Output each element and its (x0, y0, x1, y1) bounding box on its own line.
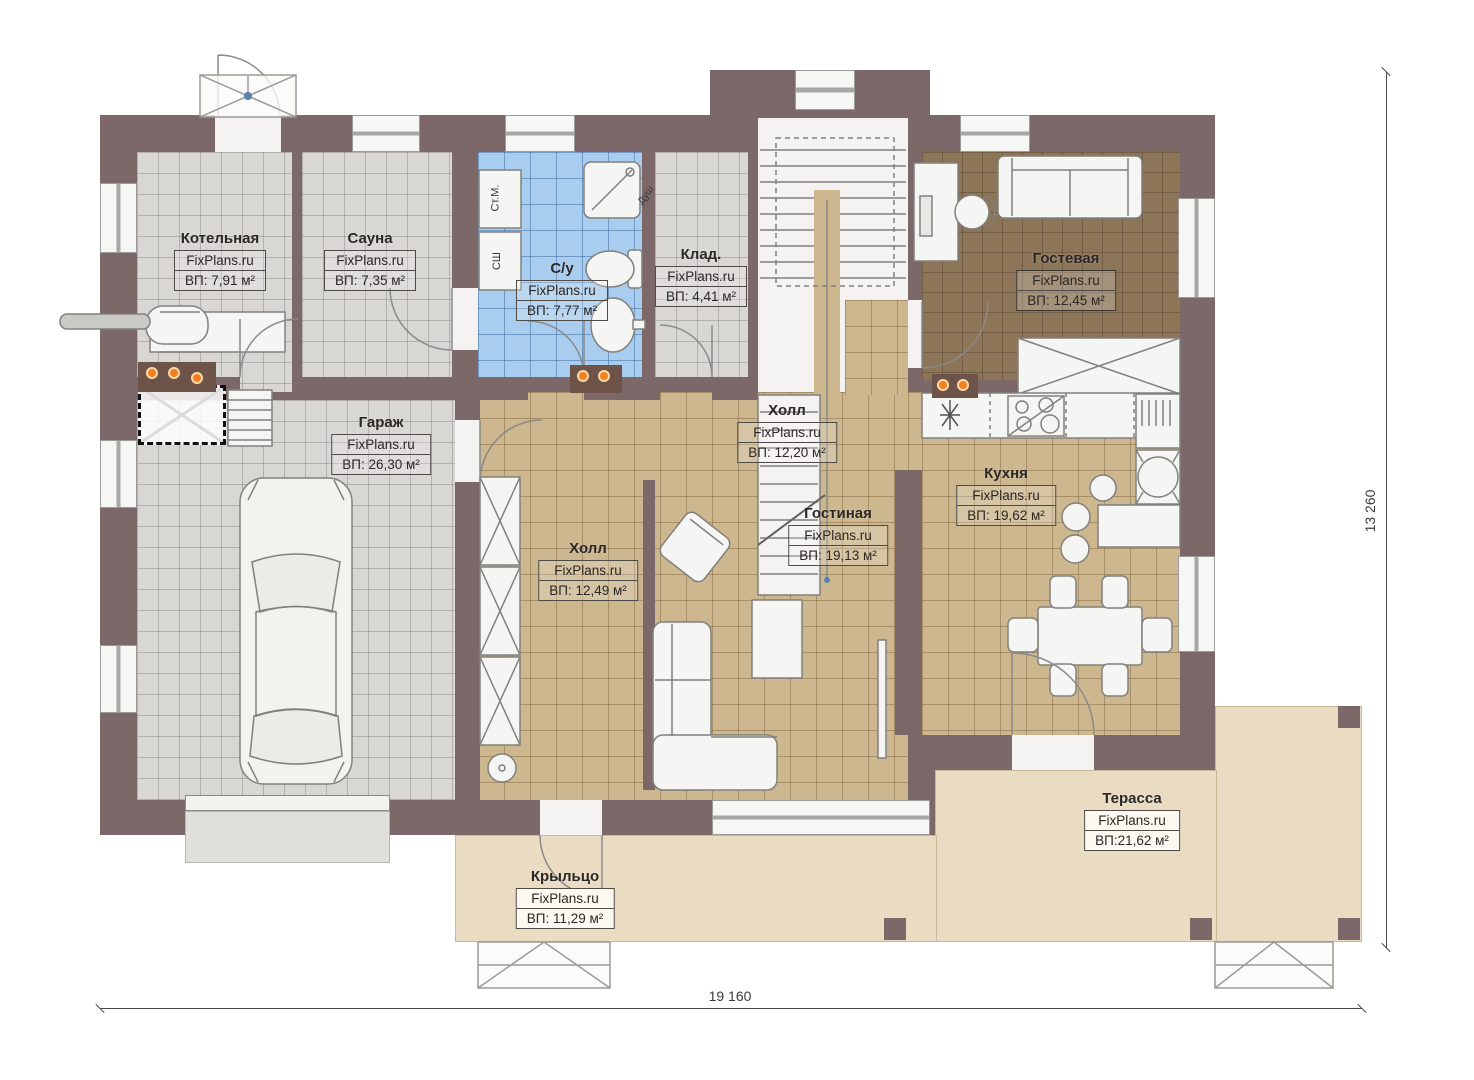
window-living (712, 800, 930, 835)
room-label-sauna: Сауна FixPlans.ruВП: 7,35 м² (324, 230, 416, 291)
room-area: ВП: 12,20 м² (738, 443, 836, 462)
wall-garage-hall-b (455, 482, 480, 800)
brand-watermark: FixPlans.ru (789, 526, 887, 546)
heat-dot (957, 379, 969, 391)
brand-watermark: FixPlans.ru (1017, 271, 1115, 291)
wall-stair-guest2 (908, 368, 922, 392)
window (505, 115, 575, 152)
room-area: ВП: 26,30 м² (332, 455, 430, 474)
terrace-pillar (1338, 918, 1360, 940)
window (1178, 198, 1215, 298)
door-opening-sauna (452, 288, 478, 350)
window (100, 183, 137, 253)
wall-hall-living (643, 480, 655, 790)
window (1178, 556, 1215, 652)
stair-run-strip (814, 190, 840, 395)
entry-steps (478, 942, 610, 988)
door-opening-garage-hall (455, 420, 480, 482)
garage-door (185, 795, 390, 811)
door-opening-guest (908, 300, 922, 368)
room-area: ВП: 19,13 м² (789, 546, 887, 565)
room-area: ВП: 11,29 м² (517, 909, 614, 928)
heat-dot (191, 372, 203, 384)
wall-living-kitchen (895, 470, 922, 735)
room-name: Котельная (174, 230, 266, 247)
room-name: Клад. (655, 246, 747, 263)
heat-dot (146, 367, 158, 379)
wall-top-rooms-c (478, 377, 528, 400)
door-opening-top (215, 115, 281, 152)
room-area: ВП: 4,41 м² (656, 287, 746, 306)
room-name: С/у (516, 260, 608, 277)
heat-dot (598, 370, 610, 382)
chimney-hatch (138, 385, 226, 445)
door-opening-entry (540, 800, 602, 835)
dimension-line-bottom (100, 1008, 1362, 1009)
wall-storage-stair (748, 118, 758, 377)
terrace-pillar (1190, 918, 1212, 940)
room-area: ВП: 12,49 м² (539, 581, 637, 600)
terrace-pillar (1338, 706, 1360, 728)
brand-watermark: FixPlans.ru (175, 251, 265, 271)
room-label-boiler: Котельная FixPlans.ruВП: 7,91 м² (174, 230, 266, 291)
room-label-garage: Гараж FixPlans.ruВП: 26,30 м² (331, 414, 431, 475)
window (100, 440, 137, 508)
brand-watermark: FixPlans.ru (539, 561, 637, 581)
brand-watermark: FixPlans.ru (517, 889, 614, 909)
room-area: ВП: 7,77 м² (517, 301, 607, 320)
window (100, 645, 137, 713)
dimension-line-right (1386, 72, 1387, 948)
room-label-terrace: Терасса FixPlans.ruВП:21,62 м² (1084, 790, 1180, 851)
brand-watermark: FixPlans.ru (656, 267, 746, 287)
room-name: Сауна (324, 230, 416, 247)
door-opening-terrace (1012, 735, 1094, 770)
room-name: Гостевая (1016, 250, 1116, 267)
brand-watermark: FixPlans.ru (332, 435, 430, 455)
room-name: Кухня (956, 465, 1056, 482)
heat-dot (577, 370, 589, 382)
dimension-width: 19 160 (700, 988, 760, 1004)
window-stair (795, 70, 855, 110)
terrace-steps (1215, 942, 1333, 988)
terrace-pillar (884, 918, 906, 940)
heat-dot (168, 367, 180, 379)
brand-watermark: FixPlans.ru (517, 281, 607, 301)
room-area: ВП: 19,62 м² (957, 506, 1055, 525)
room-name: Холл (737, 402, 837, 419)
wall-garage-hall-a (455, 400, 480, 420)
room-area: ВП: 7,35 м² (325, 271, 415, 290)
room-label-hall-lower: Холл FixPlans.ruВП: 12,49 м² (538, 540, 638, 601)
room-label-storage: Клад. FixPlans.ruВП: 4,41 м² (655, 246, 747, 307)
room-area: ВП: 7,91 м² (175, 271, 265, 290)
brand-watermark: FixPlans.ru (325, 251, 415, 271)
floor-plan: Котельная FixPlans.ruВП: 7,91 м² Сауна F… (0, 0, 1474, 1080)
room-label-guest: Гостевая FixPlans.ruВП: 12,45 м² (1016, 250, 1116, 311)
room-label-porch: Крыльцо FixPlans.ruВП: 11,29 м² (516, 868, 615, 929)
wall-stair-guest (908, 118, 922, 300)
brand-watermark: FixPlans.ru (957, 486, 1055, 506)
wall-top-rooms-b (298, 377, 452, 400)
brand-watermark: FixPlans.ru (738, 423, 836, 443)
room-label-kitchen: Кухня FixPlans.ruВП: 19,62 м² (956, 465, 1056, 526)
wall-boiler-sauna (292, 152, 302, 392)
room-area: ВП:21,62 м² (1085, 831, 1179, 850)
dryer-label: СШ (491, 252, 503, 270)
room-name: Холл (538, 540, 638, 557)
washer-label: Ст.М. (490, 184, 502, 211)
room-area: ВП: 12,45 м² (1017, 291, 1115, 310)
brand-watermark: FixPlans.ru (1085, 811, 1179, 831)
wall-sauna-bath (452, 152, 478, 400)
window (352, 115, 420, 152)
room-name: Терасса (1084, 790, 1180, 807)
heat-dot (937, 379, 949, 391)
hall-kitchen-passage (908, 392, 922, 470)
wall-top-rooms-e (712, 377, 758, 400)
window (960, 115, 1030, 152)
room-name: Гараж (331, 414, 431, 431)
entry-canopy (200, 75, 296, 117)
dimension-height: 13 260 (1362, 481, 1378, 541)
room-label-hall-upper: Холл FixPlans.ruВП: 12,20 м² (737, 402, 837, 463)
room-name: Крыльцо (516, 868, 615, 885)
room-label-bathroom: С/у FixPlans.ruВП: 7,77 м² (516, 260, 608, 321)
terrace-floor (1215, 706, 1362, 942)
room-label-living: Гостиная FixPlans.ruВП: 19,13 м² (788, 505, 888, 566)
kitchen-floor (922, 392, 1180, 735)
stair-corridor-floor (845, 300, 908, 395)
garage-apron (185, 811, 390, 863)
room-name: Гостиная (788, 505, 888, 522)
